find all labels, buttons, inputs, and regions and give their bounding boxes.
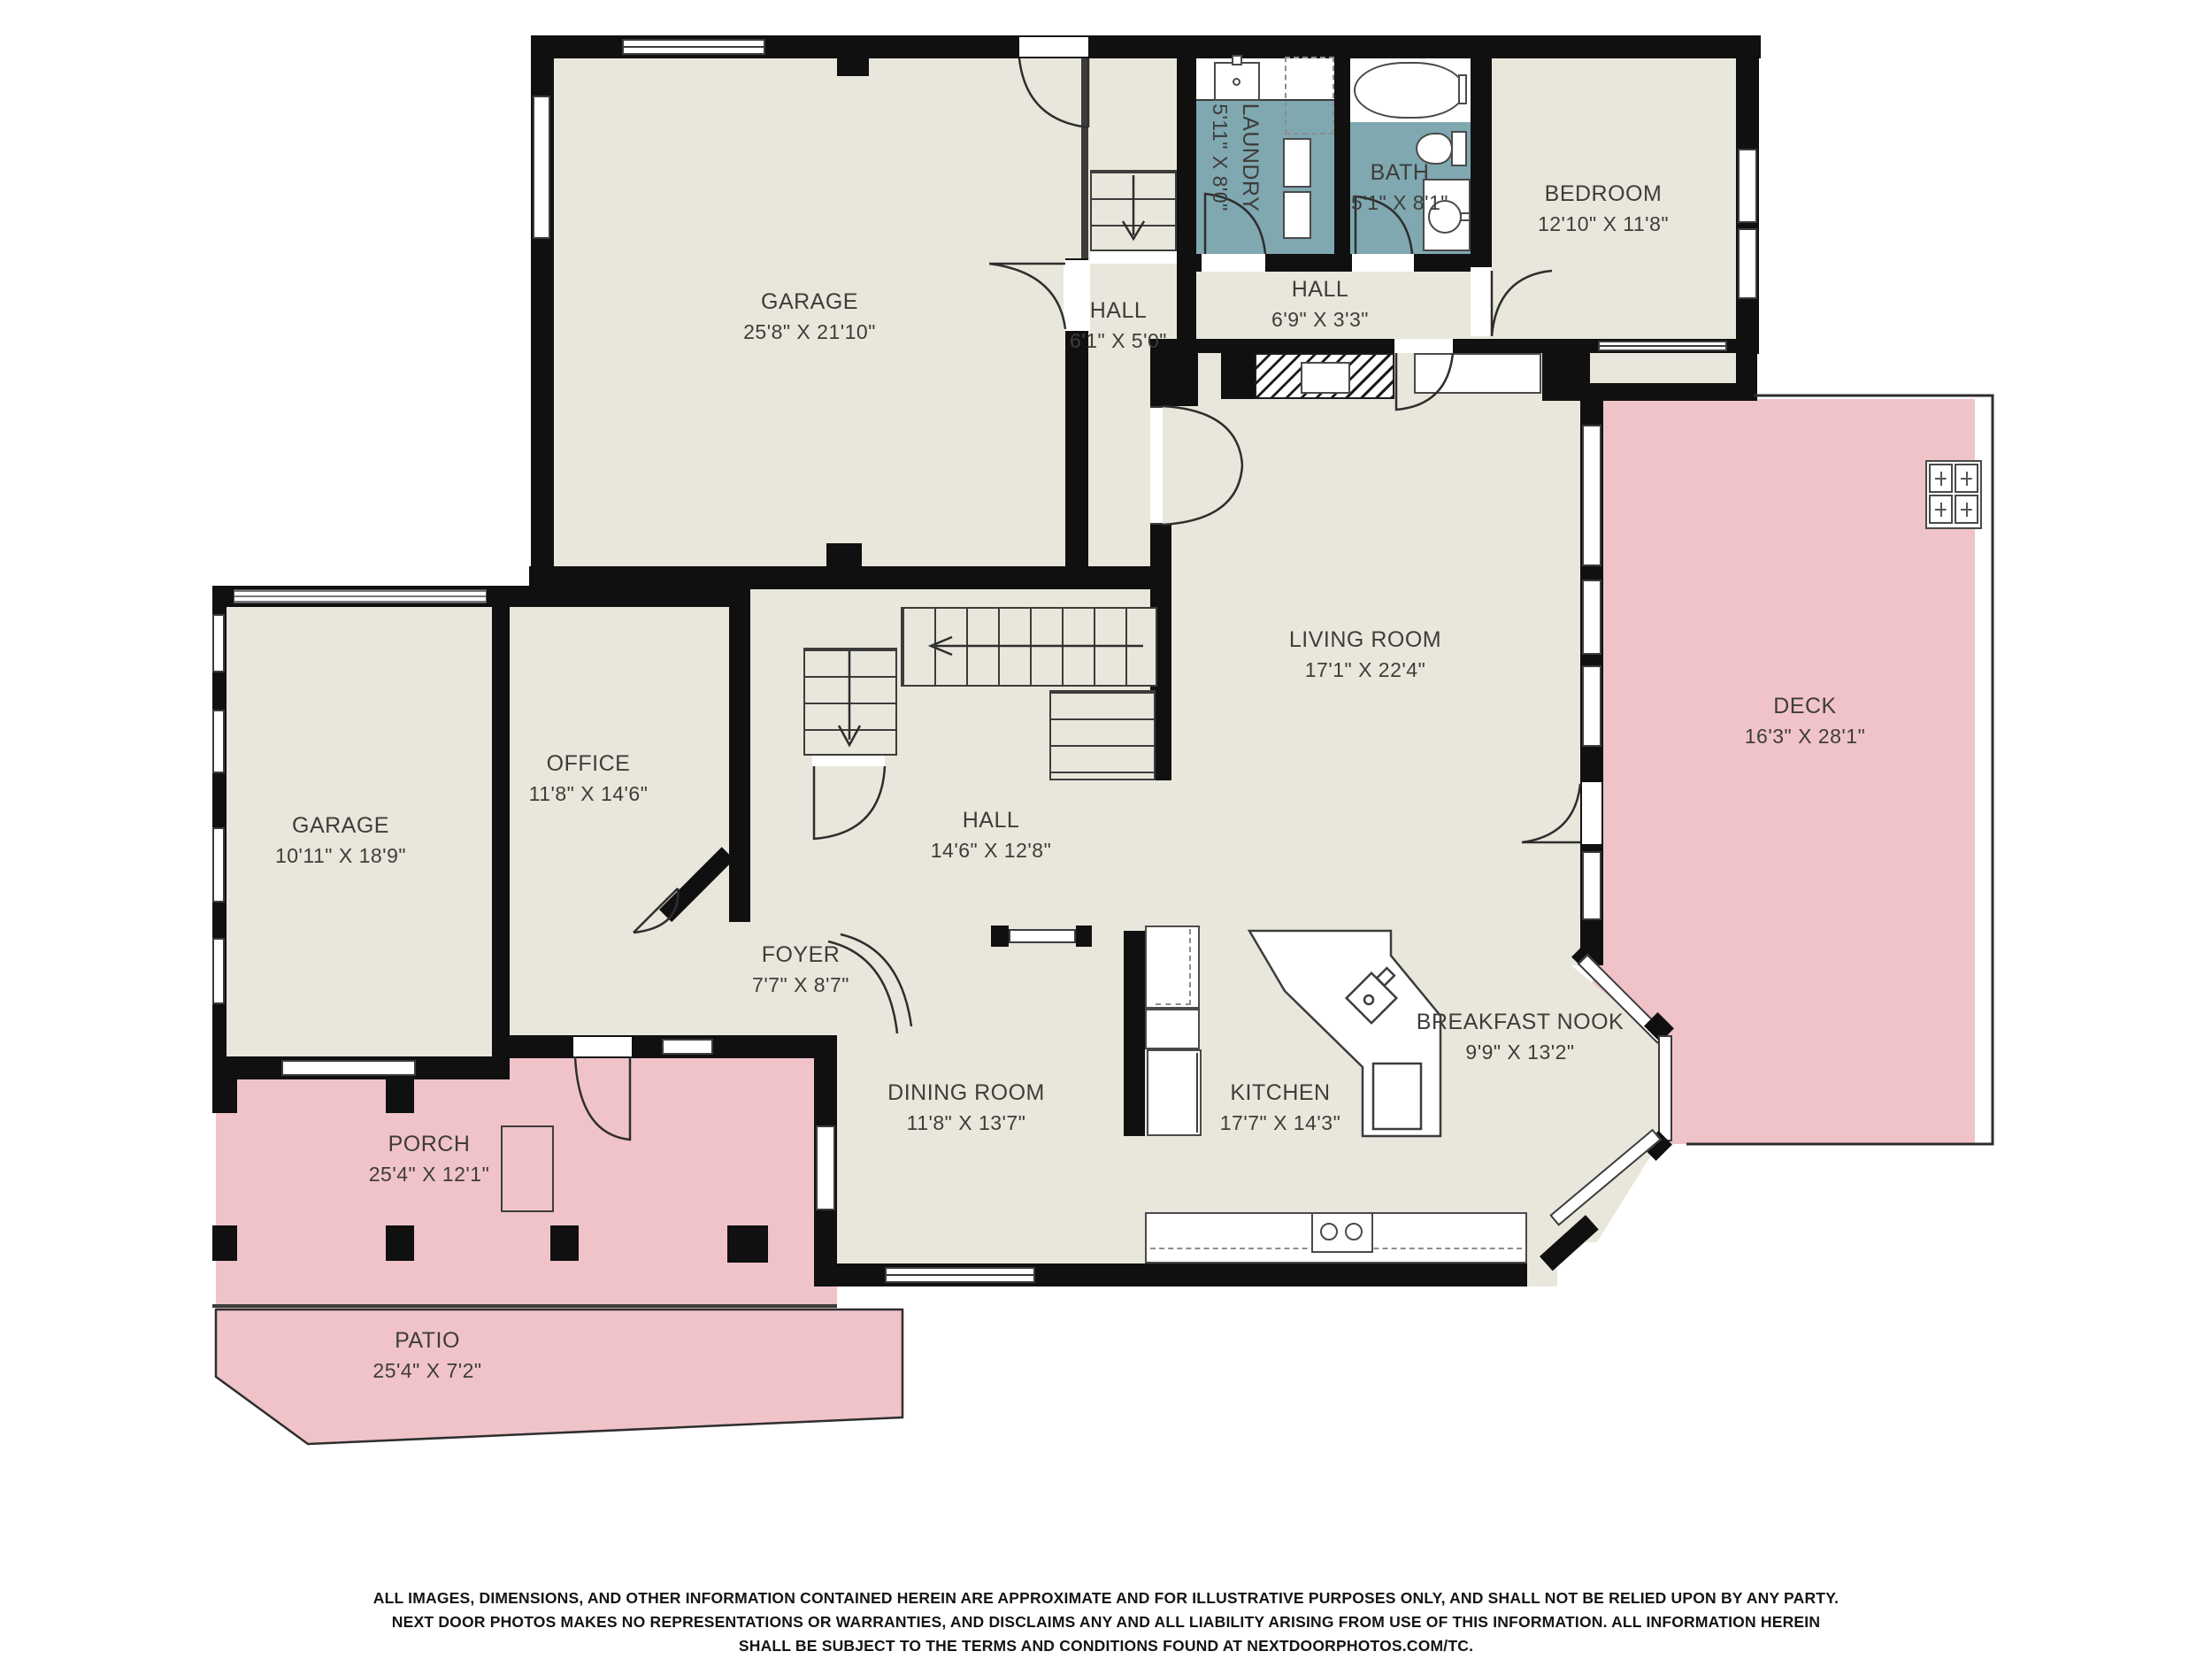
room-label-office: OFFICE11'8" X 14'6" bbox=[529, 748, 649, 810]
disclaimer-line: NEXT DOOR PHOTOS MAKES NO REPRESENTATION… bbox=[0, 1610, 2212, 1634]
deck-railing bbox=[1686, 396, 1993, 1144]
disclaimer-line: SHALL BE SUBJECT TO THE TERMS AND CONDIT… bbox=[0, 1634, 2212, 1658]
door-swing bbox=[814, 766, 885, 839]
patio-floor bbox=[216, 1310, 902, 1444]
room-label-garage-main: GARAGE25'8" X 21'10" bbox=[743, 286, 876, 348]
room-label-patio: PATIO25'4" X 7'2" bbox=[373, 1325, 481, 1386]
door-swing bbox=[1492, 271, 1552, 336]
stair-arrow bbox=[839, 651, 860, 745]
room-label-kitchen: KITCHEN17'7" X 14'3" bbox=[1220, 1077, 1340, 1139]
room-label-hall-bath: HALL6'9" X 3'3" bbox=[1271, 273, 1369, 335]
stair-arrow bbox=[1123, 175, 1144, 239]
room-label-garage-left: GARAGE10'11" X 18'9" bbox=[275, 810, 406, 872]
room-label-bath: BATH5'1" X 8'1" bbox=[1351, 157, 1448, 219]
room-label-deck: DECK16'3" X 28'1" bbox=[1745, 690, 1865, 752]
disclaimer: ALL IMAGES, DIMENSIONS, AND OTHER INFORM… bbox=[0, 1586, 2212, 1658]
door-swing bbox=[1522, 784, 1580, 842]
island-dishwasher bbox=[1373, 1064, 1421, 1129]
room-label-dining: DINING ROOM11'8" X 13'7" bbox=[887, 1077, 1045, 1139]
stair-arrow bbox=[931, 637, 1143, 655]
door-swing bbox=[1396, 353, 1453, 410]
room-label-living: LIVING ROOM17'1" X 22'4" bbox=[1289, 624, 1441, 686]
room-label-laundry: LAUNDRY5'11" X 8'0" bbox=[1204, 104, 1266, 212]
room-label-bedroom: BEDROOM12'10" X 11'8" bbox=[1538, 178, 1669, 240]
french-door-swing bbox=[1163, 406, 1242, 525]
room-label-porch: PORCH25'4" X 12'1" bbox=[369, 1128, 489, 1190]
floor-plan: GARAGE25'8" X 21'10" LAUNDRY5'11" X 8'0"… bbox=[0, 0, 2212, 1659]
door-swing bbox=[989, 264, 1065, 329]
disclaimer-line: ALL IMAGES, DIMENSIONS, AND OTHER INFORM… bbox=[0, 1586, 2212, 1610]
door-swing bbox=[1019, 58, 1088, 127]
room-label-hall-main: HALL14'6" X 12'8" bbox=[931, 804, 1051, 866]
door-swing bbox=[634, 888, 678, 933]
room-label-nook: BREAKFAST NOOK9'9" X 13'2" bbox=[1417, 1006, 1624, 1068]
room-label-foyer: FOYER7'7" X 8'7" bbox=[752, 939, 849, 1001]
door-swing bbox=[575, 1056, 630, 1140]
room-label-hall-garage: HALL6'1" X 5'0" bbox=[1070, 295, 1167, 357]
